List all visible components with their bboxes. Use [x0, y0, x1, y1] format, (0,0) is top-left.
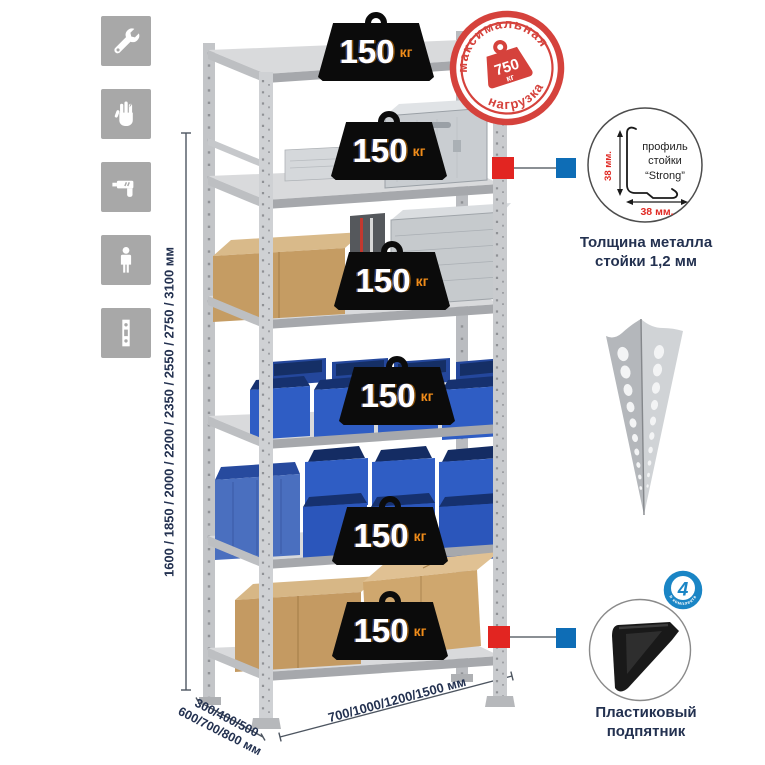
callout-marker-red-top [492, 157, 514, 179]
wrench-icon [101, 16, 151, 66]
drill-icon [101, 162, 151, 212]
weight-body-icon: 150 кг [318, 23, 434, 81]
metal-post-image [593, 310, 699, 530]
profile-label-line1: профиль [642, 141, 688, 153]
badge-number: 4 [677, 580, 689, 601]
callout-line-bottom [510, 636, 556, 638]
weight-body-icon: 150 кг [332, 507, 448, 565]
weight-body-icon: 150 кг [334, 252, 450, 310]
height-dimension-label: 1600 / 1850 / 2000 / 2200 / 2350 / 2550 … [162, 130, 180, 695]
load-unit: кг [421, 388, 434, 404]
load-value: 150 [340, 23, 395, 81]
shelf-load-badge: 150 кг [331, 496, 449, 565]
post-profile-callout: 38 мм. 38 мм. профиль стойки “Strong” [586, 106, 704, 224]
shelving-product-infographic: 1600 / 1850 / 2000 / 2200 / 2350 / 2550 … [0, 0, 765, 765]
load-value: 150 [354, 602, 409, 660]
weight-body-icon: 150 кг [339, 367, 455, 425]
shelf-load-badge: 150 кг [333, 241, 451, 310]
shelf-load-badge: 150 кг [330, 111, 448, 180]
feature-icon-column [101, 16, 151, 381]
plastic-foot-callout [588, 598, 692, 702]
callout-marker-blue-top [556, 158, 576, 178]
callout-marker-blue-bottom [556, 628, 576, 648]
foot-caption-line1: Пластиковый [571, 704, 721, 723]
shelf-load-badge: 150 кг [331, 591, 449, 660]
load-value: 150 [361, 367, 416, 425]
weight-body-icon: 150 кг [332, 602, 448, 660]
profile-dim-vertical: 38 мм. [603, 151, 614, 181]
thickness-caption-line2: стойки 1,2 мм [571, 253, 721, 272]
thickness-caption: Толщина металла стойки 1,2 мм [571, 234, 721, 272]
callout-line-top [514, 167, 556, 169]
load-value: 150 [354, 507, 409, 565]
profile-label-line3: “Strong” [645, 170, 685, 182]
included-quantity-badge: 4 в комплекте [661, 568, 705, 612]
load-unit: кг [414, 528, 427, 544]
load-value: 150 [353, 122, 408, 180]
profile-label-line2: стойки [648, 155, 682, 167]
height-dimension-line [181, 133, 191, 690]
load-unit: кг [416, 273, 429, 289]
shelf-load-badge: 150 кг [338, 356, 456, 425]
load-unit: кг [400, 44, 413, 60]
person-icon [101, 235, 151, 285]
weight-body-icon: 150 кг [331, 122, 447, 180]
gloves-icon [101, 89, 151, 139]
foot-caption: Пластиковый подпятник [571, 704, 721, 742]
profile-dim-horizontal: 38 мм. [640, 206, 673, 218]
load-unit: кг [414, 623, 427, 639]
load-value: 150 [356, 252, 411, 310]
foot-caption-line2: подпятник [571, 723, 721, 742]
thickness-caption-line1: Толщина металла [571, 234, 721, 253]
shelf-load-badge: 150 кг [317, 12, 435, 81]
rack-post-icon [101, 308, 151, 358]
callout-marker-red-bottom [488, 626, 510, 648]
max-load-stamp: максимальная нагрузка 750 кг [447, 8, 567, 128]
load-unit: кг [413, 143, 426, 159]
